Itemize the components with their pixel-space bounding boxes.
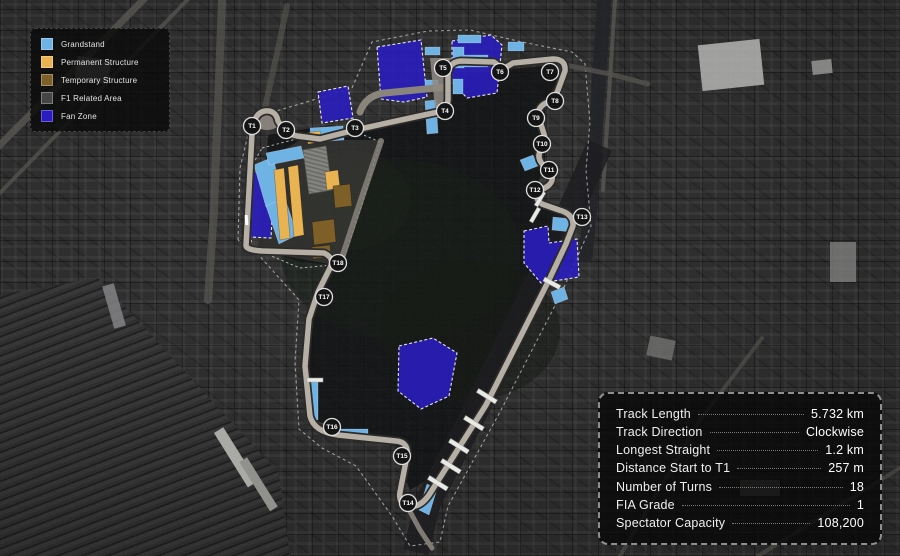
grandstand-swatch-icon xyxy=(41,38,53,50)
fan-swatch-icon xyxy=(41,110,53,122)
turn-marker-label: T15 xyxy=(396,453,408,460)
circuit-map: T1T2T3T4T5T6T7T8T9T10T11T12T13T14T15T16T… xyxy=(0,0,900,556)
turn-marker-label: T9 xyxy=(532,115,540,122)
turn-marker-t4: T4 xyxy=(437,103,454,120)
turn-marker-label: T16 xyxy=(326,424,338,431)
stat-row: Longest Straight1.2 km xyxy=(616,443,864,457)
turn-marker-label: T5 xyxy=(439,65,447,72)
stat-row: Distance Start to T1257 m xyxy=(616,461,864,475)
legend-label: Temporary Structure xyxy=(61,76,137,85)
turn-marker-t2: T2 xyxy=(278,122,295,139)
stat-value: 257 m xyxy=(828,461,864,475)
turn-marker-t10: T10 xyxy=(534,136,551,153)
stat-row: FIA Grade1 xyxy=(616,498,864,512)
dotted-leader xyxy=(698,414,804,415)
stat-value: 1 xyxy=(857,498,864,512)
turn-marker-label: T17 xyxy=(318,294,330,301)
legend-label: Grandstand xyxy=(61,40,105,49)
turn-marker-label: T3 xyxy=(351,125,359,132)
stat-row: Number of Turns18 xyxy=(616,480,864,494)
stat-label: Track Length xyxy=(616,407,691,421)
dotted-leader xyxy=(737,468,821,469)
stat-row: Track Length5.732 km xyxy=(616,407,864,421)
turn-marker-label: T8 xyxy=(551,98,559,105)
legend-item-f1: F1 Related Area xyxy=(41,92,159,104)
stat-row: Track DirectionClockwise xyxy=(616,425,864,439)
turn-marker-label: T13 xyxy=(576,214,588,221)
dotted-leader xyxy=(682,505,850,506)
stat-label: Longest Straight xyxy=(616,443,710,457)
turn-marker-label: T7 xyxy=(546,69,554,76)
stat-label: Track Direction xyxy=(616,425,703,439)
turn-marker-label: T14 xyxy=(402,500,414,507)
stats-panel: Track Length5.732 kmTrack DirectionClock… xyxy=(598,392,882,545)
temporary-swatch-icon xyxy=(41,74,53,86)
legend-label: Fan Zone xyxy=(61,112,97,121)
turn-marker-label: T10 xyxy=(536,141,548,148)
f1-swatch-icon xyxy=(41,92,53,104)
turn-marker-label: T1 xyxy=(248,123,256,130)
turn-marker-t6: T6 xyxy=(492,64,509,81)
legend-items: GrandstandPermanent StructureTemporary S… xyxy=(41,38,159,122)
turn-marker-t7: T7 xyxy=(542,64,559,81)
turn-marker-t12: T12 xyxy=(527,182,544,199)
stats-rows: Track Length5.732 kmTrack DirectionClock… xyxy=(616,407,864,530)
legend-label: F1 Related Area xyxy=(61,94,122,103)
turn-marker-t13: T13 xyxy=(574,209,591,226)
turn-marker-t16: T16 xyxy=(324,419,341,436)
stat-value: 108,200 xyxy=(817,516,864,530)
turn-marker-label: T2 xyxy=(282,127,290,134)
legend-label: Permanent Structure xyxy=(61,58,139,67)
turn-marker-label: T12 xyxy=(529,187,541,194)
turn-marker-t9: T9 xyxy=(528,110,545,127)
permanent-swatch-icon xyxy=(41,56,53,68)
stat-label: Number of Turns xyxy=(616,480,712,494)
stat-value: 5.732 km xyxy=(811,407,864,421)
turn-marker-label: T18 xyxy=(332,260,344,267)
turn-marker-t8: T8 xyxy=(547,93,564,110)
dotted-leader xyxy=(717,450,818,451)
stat-value: 18 xyxy=(850,480,864,494)
stat-row: Spectator Capacity108,200 xyxy=(616,516,864,530)
turn-marker-t11: T11 xyxy=(541,162,558,179)
turn-marker-t1: T1 xyxy=(244,118,261,135)
turn-marker-t3: T3 xyxy=(347,120,364,137)
turn-marker-label: T11 xyxy=(544,167,555,174)
dotted-leader xyxy=(710,432,799,433)
dotted-leader xyxy=(732,523,810,524)
turn-marker-label: T6 xyxy=(496,69,504,76)
stat-value: Clockwise xyxy=(806,425,864,439)
turn-marker-t18: T18 xyxy=(330,255,347,272)
dotted-leader xyxy=(719,487,843,488)
turn-marker-t17: T17 xyxy=(316,289,333,306)
stat-label: FIA Grade xyxy=(616,498,675,512)
turn-marker-t15: T15 xyxy=(394,448,411,465)
stat-label: Spectator Capacity xyxy=(616,516,725,530)
turn-marker-t5: T5 xyxy=(435,60,452,77)
turn-marker-label: T4 xyxy=(441,108,449,115)
legend-item-fan: Fan Zone xyxy=(41,110,159,122)
stat-label: Distance Start to T1 xyxy=(616,461,730,475)
legend-item-temporary: Temporary Structure xyxy=(41,74,159,86)
stat-value: 1.2 km xyxy=(825,443,864,457)
map-legend: GrandstandPermanent StructureTemporary S… xyxy=(30,28,170,132)
legend-item-grandstand: Grandstand xyxy=(41,38,159,50)
legend-item-permanent: Permanent Structure xyxy=(41,56,159,68)
turn-marker-t14: T14 xyxy=(400,495,417,512)
